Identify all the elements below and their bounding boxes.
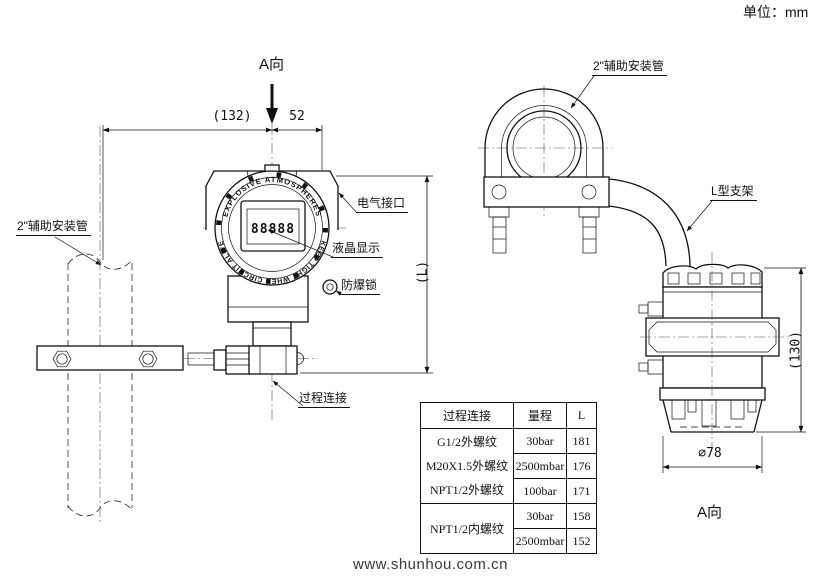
unit-note: 单位：mm [743,4,808,20]
spec-connections-group1: G1/2外螺纹 M20X1.5外螺纹 NPT1/2外螺纹 [421,429,514,504]
spec-header-L: L [567,403,597,429]
spec-range: 30bar [514,504,567,529]
spec-connection: M20X1.5外螺纹 [421,454,513,478]
callout-explosion-proof-lock: 防爆锁 [340,279,380,295]
spec-length: 152 [567,529,597,554]
dim-height-130: (130) [790,325,805,375]
spec-connection: NPT1/2外螺纹 [421,478,513,502]
lcd-digits: 88888 [251,222,295,237]
website-footer: www.shunhou.com.cn [353,556,508,573]
transmitter-head-front: EXPLOSIVE ATMOSPHERES KEEP TIGHT WHEN CI… [206,165,338,294]
callout-electrical-port: 电气接口 [356,197,408,213]
front-view-direction-label: A向 [259,56,284,73]
transmitter-side [639,252,790,448]
table-row: G1/2外螺纹 M20X1.5外螺纹 NPT1/2外螺纹 30bar 181 [421,429,597,454]
spec-table: 过程连接 量程 L G1/2外螺纹 M20X1.5外螺纹 NPT1/2外螺纹 3… [420,402,597,554]
spec-header-connection: 过程连接 [421,403,514,429]
callout-aux-pipe-front: 2"辅助安装管 [16,220,91,236]
dim-height-L: (L) [417,252,432,292]
spec-header-range: 量程 [514,403,567,429]
lock-screw [323,280,337,294]
spec-range: 2500mbar [514,454,567,479]
callout-aux-pipe-side: 2"辅助安装管 [592,60,667,76]
l-bracket [609,179,690,266]
clamp-plate [484,177,609,253]
technical-drawing-page: EXPLOSIVE ATMOSPHERES KEEP TIGHT WHEN CI… [0,0,840,581]
mounting-bar [37,346,183,370]
spec-length: 158 [567,504,597,529]
spec-range: 30bar [514,429,567,454]
spec-header-row: 过程连接 量程 L [421,403,597,429]
spec-length: 176 [567,454,597,479]
table-row: NPT1/2内螺纹 30bar 158 [421,504,597,529]
spec-connection-group2: NPT1/2内螺纹 [421,504,514,554]
spec-length: 181 [567,429,597,454]
dim-diameter-78: ∅78 [680,447,740,462]
dim-width-total: (132) [196,110,268,125]
callout-l-bracket: L型支架 [710,185,757,201]
spec-range: 100bar [514,479,567,504]
callout-lcd-display: 液晶显示 [331,242,383,258]
side-leader-lines [571,76,712,231]
front-view-drawing: EXPLOSIVE ATMOSPHERES KEEP TIGHT WHEN CI… [37,84,433,522]
spec-connection: G1/2外螺纹 [421,430,513,454]
spec-range: 2500mbar [514,529,567,554]
callout-process-connection: 过程连接 [298,392,350,408]
dim-width-right: 52 [266,110,328,125]
side-view-direction-label: A向 [697,504,722,521]
spec-length: 171 [567,479,597,504]
